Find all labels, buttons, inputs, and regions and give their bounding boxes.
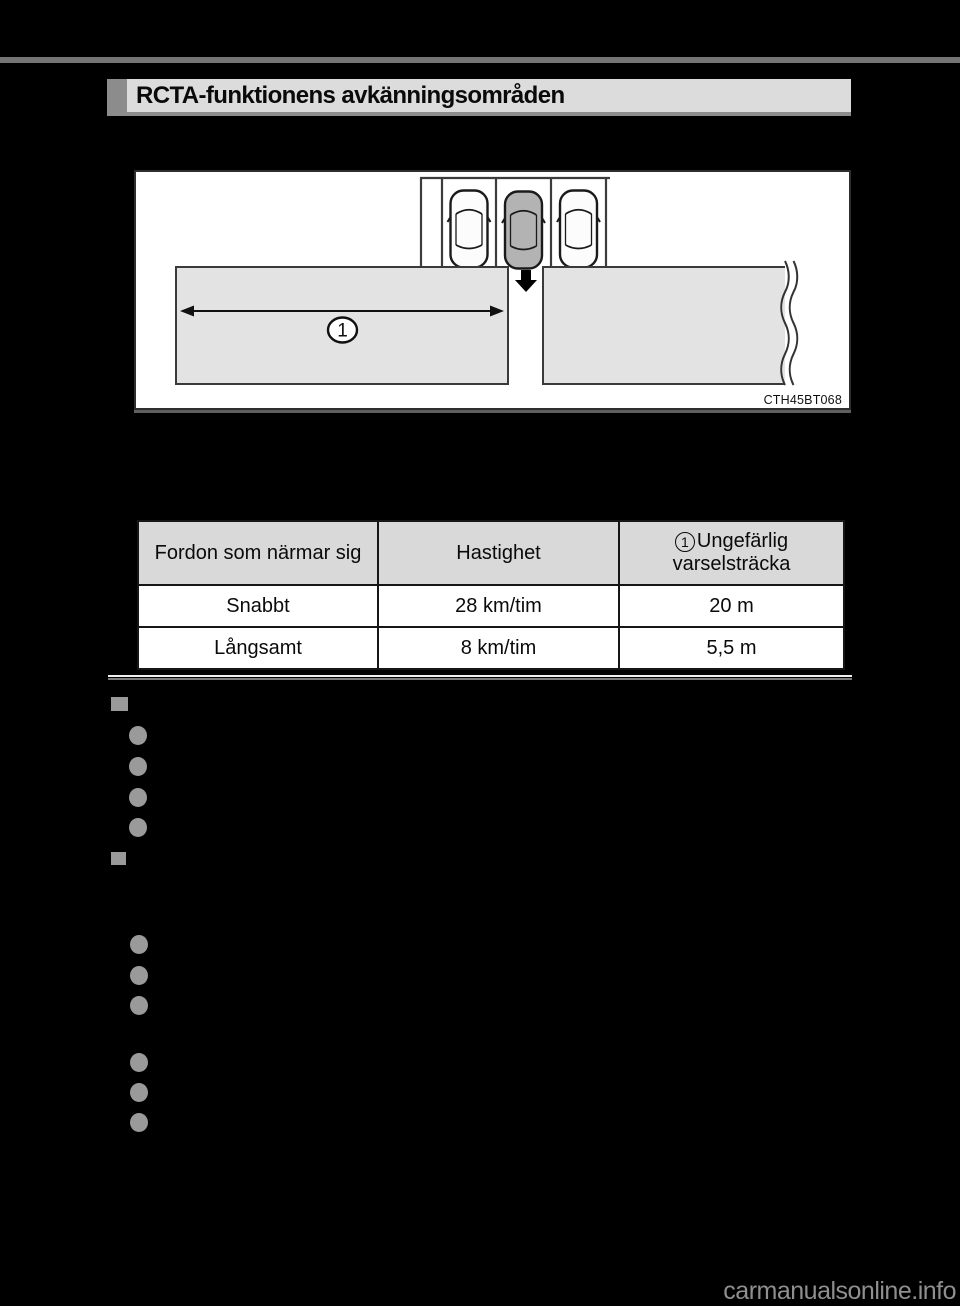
manual-page: RCTA-funktionens avkänningsområden	[0, 0, 960, 1306]
detection-area-diagram: 1 CTH45BT068	[134, 170, 851, 410]
list-bullet	[129, 726, 147, 745]
section-title-bar-inner: RCTA-funktionens avkänningsområden	[127, 79, 851, 112]
table-callout-1-icon: 1	[675, 532, 695, 552]
cell-distance: 5,5 m	[619, 627, 844, 669]
list-bullet	[129, 788, 147, 807]
table-header-row: Fordon som närmar sig Hastighet 1 Ungefä…	[138, 521, 844, 585]
top-divider-rule	[0, 57, 960, 63]
cell-vehicle: Snabbt	[138, 585, 378, 627]
list-bullet	[130, 935, 148, 954]
col-header-distance-line2: varselsträcka	[620, 553, 843, 576]
cell-speed: 8 km/tim	[378, 627, 619, 669]
watermark: carmanualsonline.info	[723, 1277, 956, 1306]
col-header-speed: Hastighet	[378, 521, 619, 585]
col-header-distance-line1: Ungefärlig	[697, 530, 788, 553]
list-bullet	[129, 818, 147, 837]
col-header-distance: 1 Ungefärlig varselsträcka	[619, 521, 844, 585]
section-end-double-rule	[108, 675, 852, 680]
col-header-vehicle: Fordon som närmar sig	[138, 521, 378, 585]
host-vehicle	[502, 192, 545, 269]
section-square-bullet	[111, 697, 128, 711]
list-bullet	[130, 1113, 148, 1132]
section-square-bullet	[111, 852, 126, 865]
parked-car-right	[557, 191, 600, 268]
table-row: Långsamt 8 km/tim 5,5 m	[138, 627, 844, 669]
table-row: Snabbt 28 km/tim 20 m	[138, 585, 844, 627]
cell-distance: 20 m	[619, 585, 844, 627]
detection-area-right	[543, 267, 785, 384]
parked-car-left	[448, 191, 491, 268]
section-title: RCTA-funktionens avkänningsområden	[127, 82, 565, 110]
svg-text:1: 1	[337, 321, 348, 342]
warning-distance-table: Fordon som närmar sig Hastighet 1 Ungefä…	[137, 520, 845, 670]
reverse-direction-arrow	[515, 270, 537, 292]
list-bullet	[130, 1053, 148, 1072]
figure-code: CTH45BT068	[764, 393, 842, 407]
list-bullet	[129, 757, 147, 776]
list-bullet	[130, 1083, 148, 1102]
diagram-callout-1: 1	[328, 318, 357, 343]
list-bullet	[130, 996, 148, 1015]
list-bullet	[130, 966, 148, 985]
cell-speed: 28 km/tim	[378, 585, 619, 627]
section-title-bar: RCTA-funktionens avkänningsområden	[107, 79, 851, 116]
cell-vehicle: Långsamt	[138, 627, 378, 669]
diagram-graphic: 1	[136, 172, 845, 404]
